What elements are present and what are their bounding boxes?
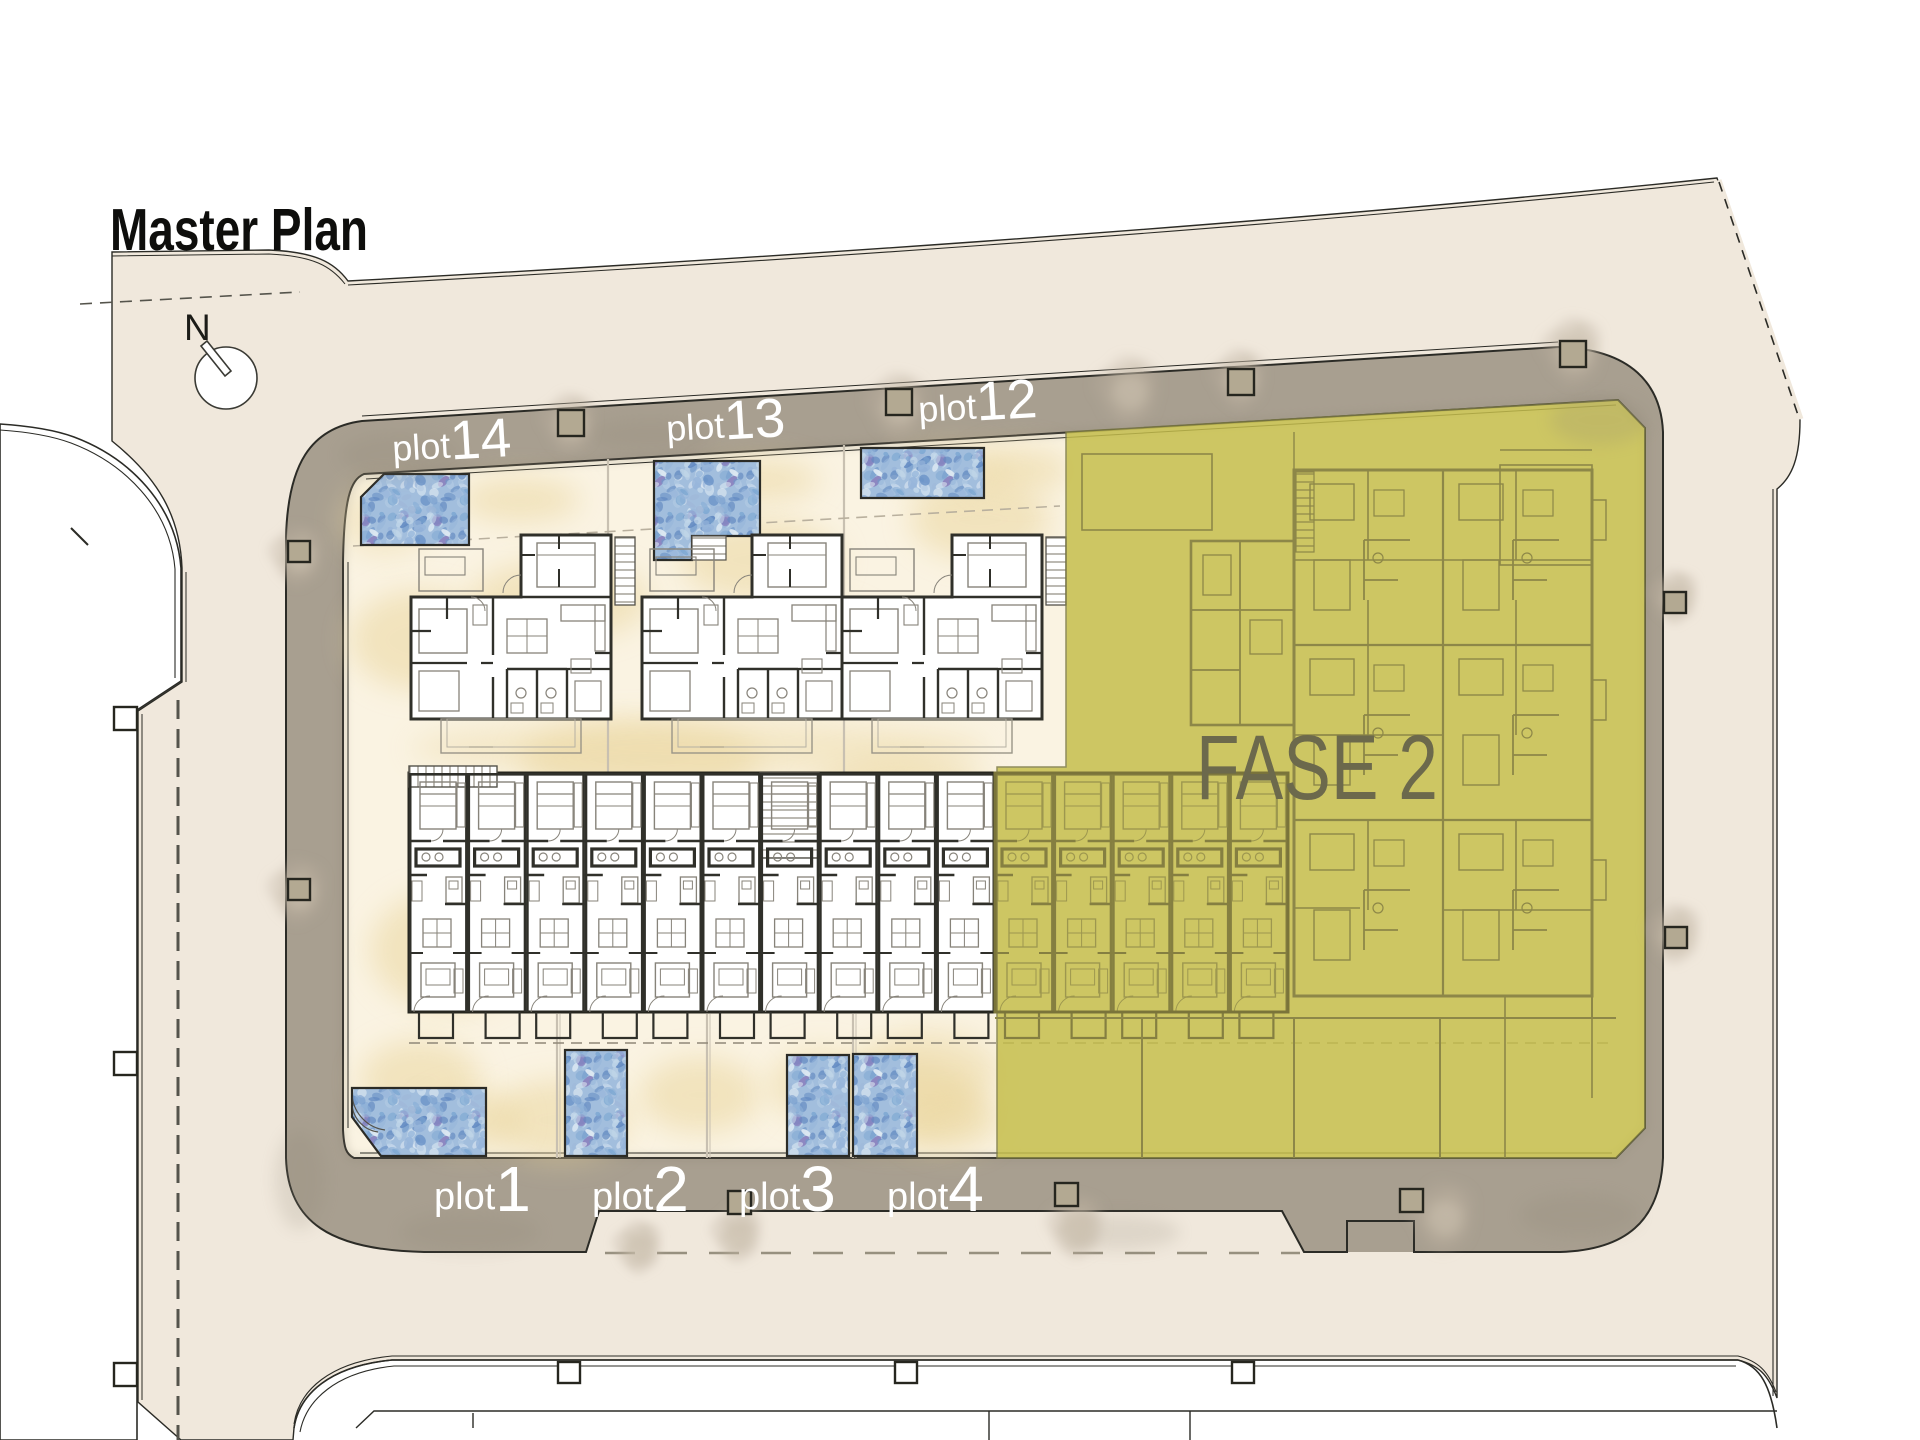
svg-text:N: N xyxy=(184,307,211,348)
svg-text:FASE 2: FASE 2 xyxy=(1196,717,1438,819)
svg-text:Master Plan: Master Plan xyxy=(110,197,368,263)
